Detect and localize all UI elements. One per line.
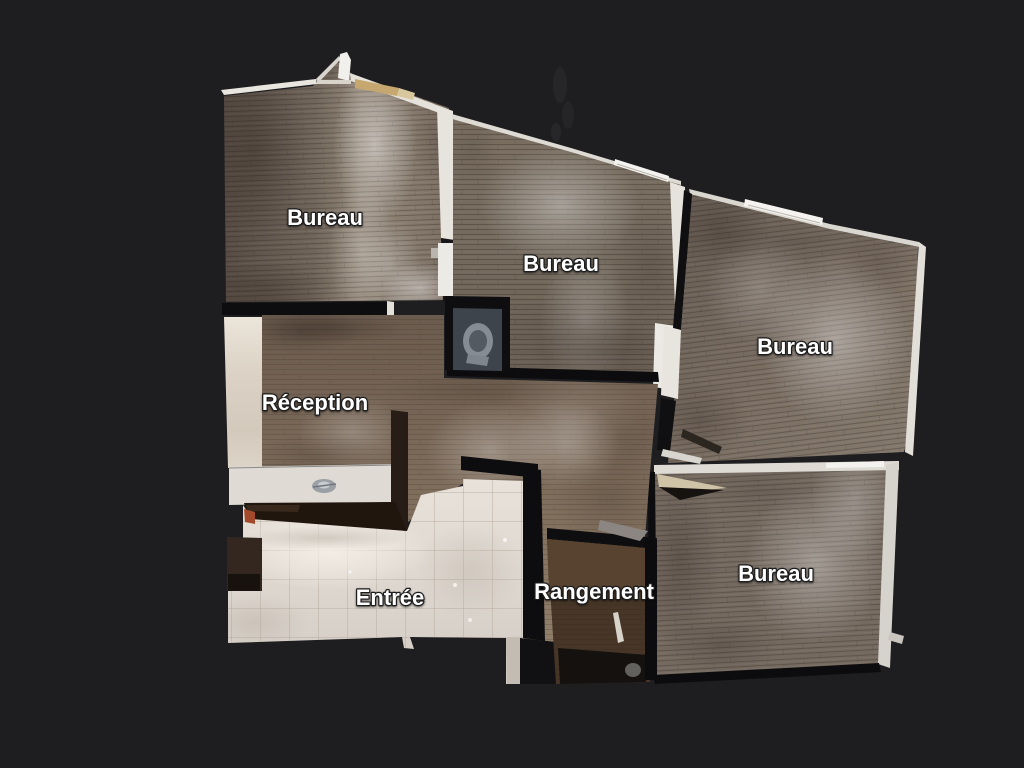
- svg-text:Entrée: Entrée: [356, 585, 424, 610]
- svg-text:Bureau: Bureau: [738, 561, 814, 586]
- svg-text:Réception: Réception: [262, 390, 368, 415]
- svg-text:Rangement: Rangement: [534, 579, 654, 604]
- svg-text:Bureau: Bureau: [757, 334, 833, 359]
- svg-text:Bureau: Bureau: [287, 205, 363, 230]
- svg-text:Bureau: Bureau: [523, 251, 599, 276]
